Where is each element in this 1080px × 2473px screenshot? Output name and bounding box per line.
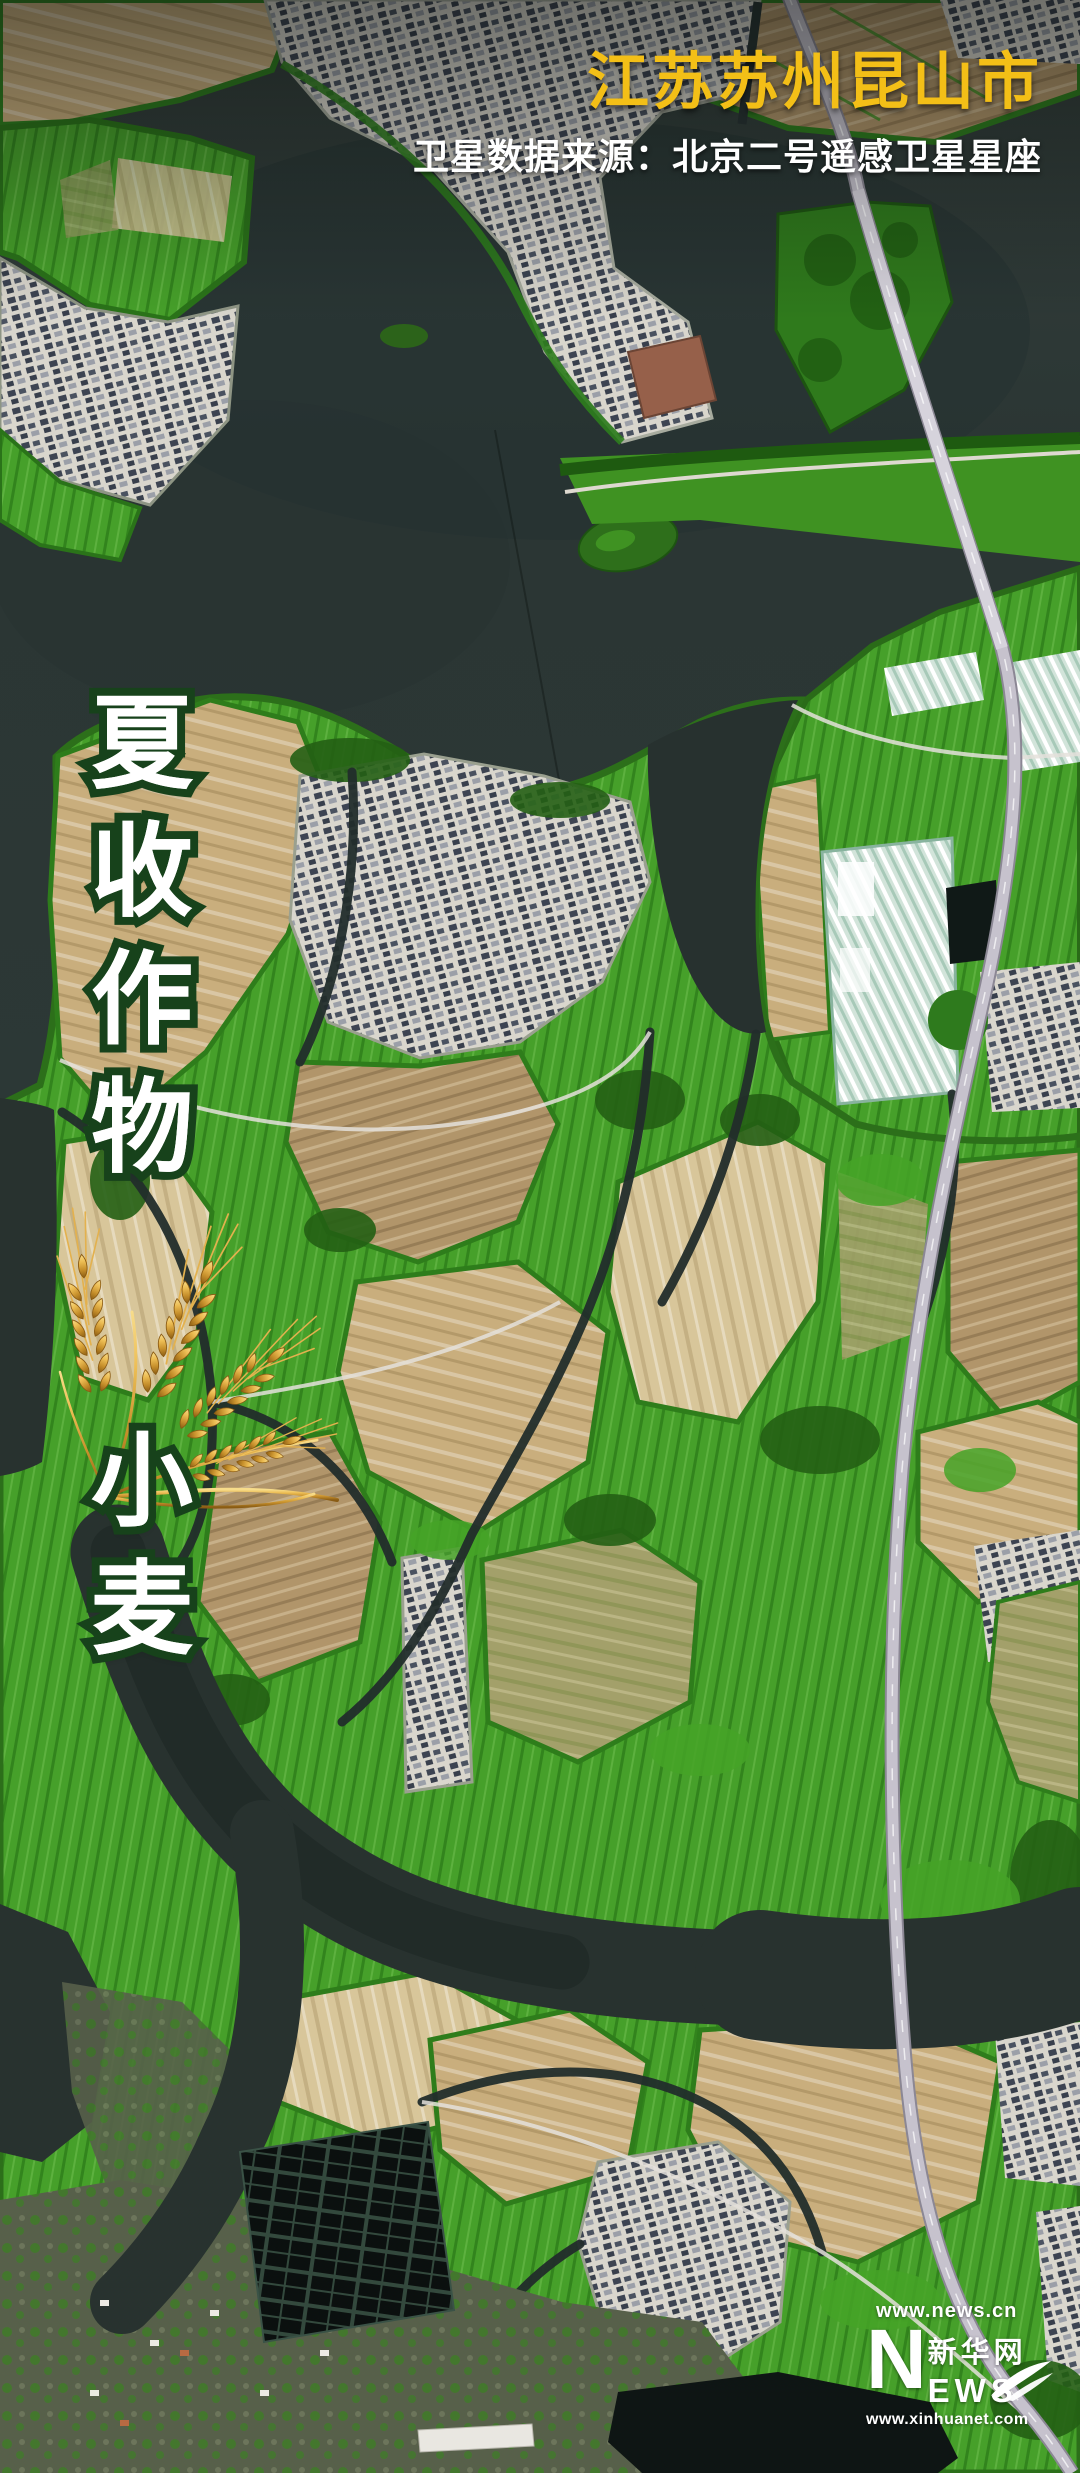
- xinhuanet-logo: www.news.cn N 新华网 EWS www.xinhuanet.com: [866, 2300, 1046, 2429]
- vertical-label-wheat: 小小 麦麦: [84, 1426, 200, 1666]
- label-char: 夏夏: [84, 688, 200, 800]
- xinhua-logo-n: N: [866, 2325, 925, 2394]
- label-char: 收收: [84, 816, 200, 928]
- xinhua-swoosh-icon: [990, 2361, 1054, 2401]
- xinhuanet-url: www.xinhuanet.com: [866, 2411, 1046, 2429]
- news-satellite-poster: 江苏苏州昆山市 卫星数据来源：北京二号遥感卫星星座: [0, 0, 1080, 2473]
- label-char: 物物: [84, 1072, 200, 1184]
- vertical-label-summer-harvest-crop: 夏夏 收收 作作 物物: [84, 688, 200, 1184]
- data-source-subtitle: 卫星数据来源：北京二号遥感卫星星座: [413, 128, 1042, 180]
- label-char: 麦麦: [84, 1554, 200, 1666]
- label-char: 小小: [84, 1426, 200, 1538]
- header: 江苏苏州昆山市 卫星数据来源：北京二号遥感卫星星座: [413, 46, 1042, 180]
- page-title: 江苏苏州昆山市: [413, 46, 1042, 120]
- label-char: 作作: [84, 944, 200, 1056]
